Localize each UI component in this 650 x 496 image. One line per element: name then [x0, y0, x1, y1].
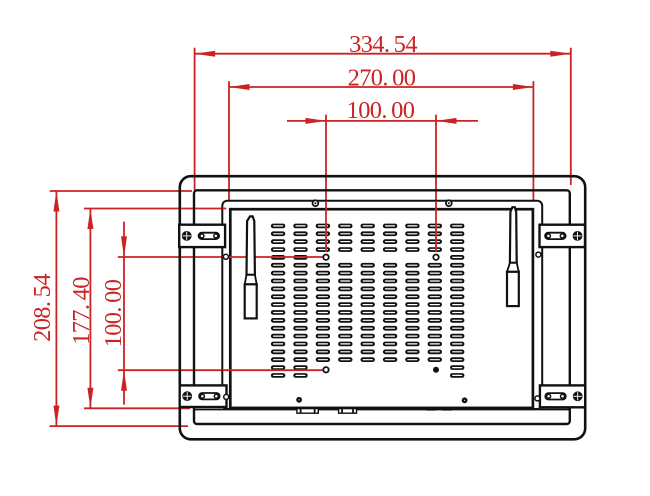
svg-text:100. 00: 100. 00 [100, 279, 127, 347]
svg-text:100. 00: 100. 00 [347, 97, 415, 124]
svg-text:208. 54: 208. 54 [29, 274, 56, 342]
svg-text:270. 00: 270. 00 [348, 65, 416, 92]
svg-text:177. 40: 177. 40 [68, 277, 95, 345]
svg-text:334. 54: 334. 54 [349, 31, 417, 58]
